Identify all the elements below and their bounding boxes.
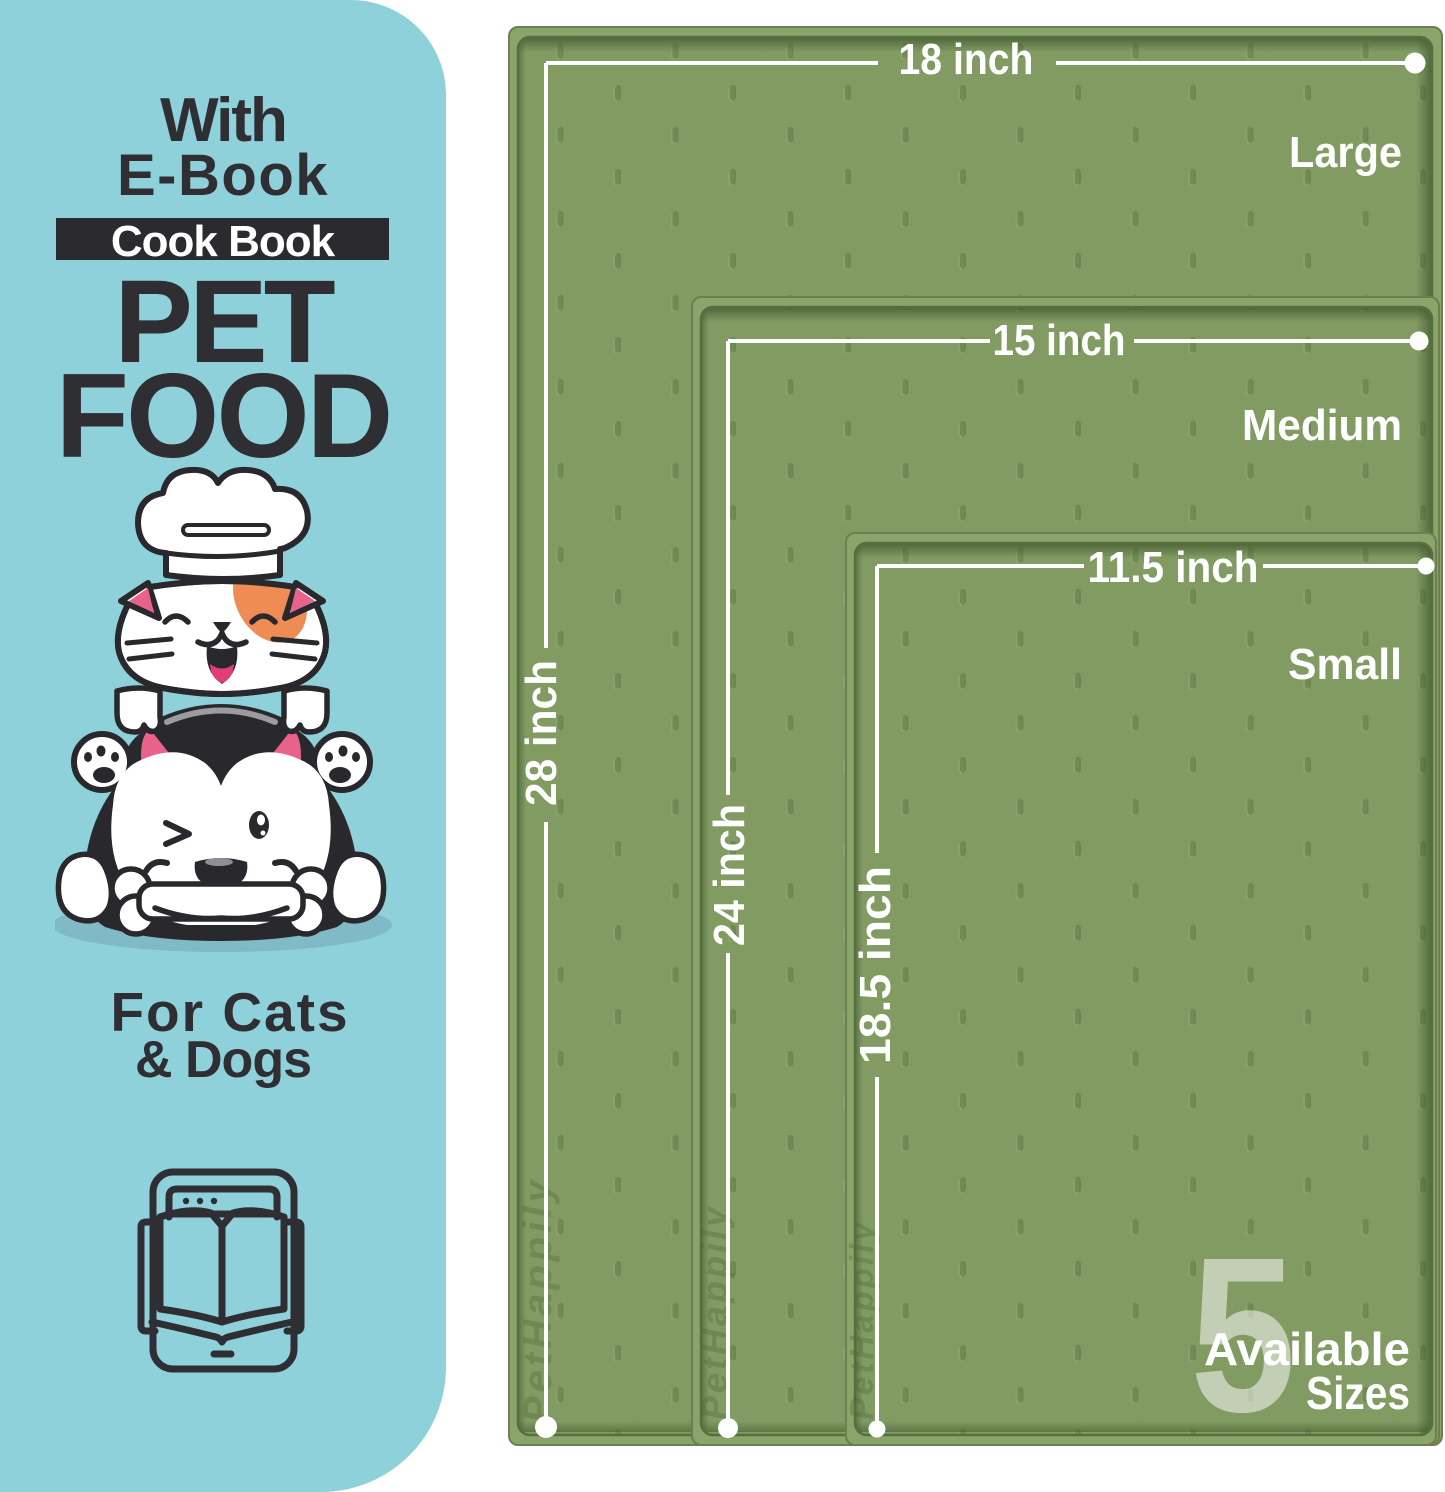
svg-text:18 inch: 18 inch [899,35,1034,84]
svg-text:11.5 inch: 11.5 inch [1088,543,1259,592]
svg-text:Sizes: Sizes [1306,1367,1410,1419]
svg-text:24 inch: 24 inch [705,804,754,946]
svg-text:18.5 inch: 18.5 inch [851,866,900,1064]
svg-text:PetHappily: PetHappily [843,1219,880,1420]
svg-text:Large: Large [1289,128,1402,177]
svg-text:PetHappily: PetHappily [516,1176,560,1423]
svg-text:Medium: Medium [1242,401,1402,450]
svg-text:Small: Small [1288,640,1402,689]
svg-text:28 inch: 28 inch [517,660,566,806]
svg-text:15 inch: 15 inch [993,316,1126,365]
